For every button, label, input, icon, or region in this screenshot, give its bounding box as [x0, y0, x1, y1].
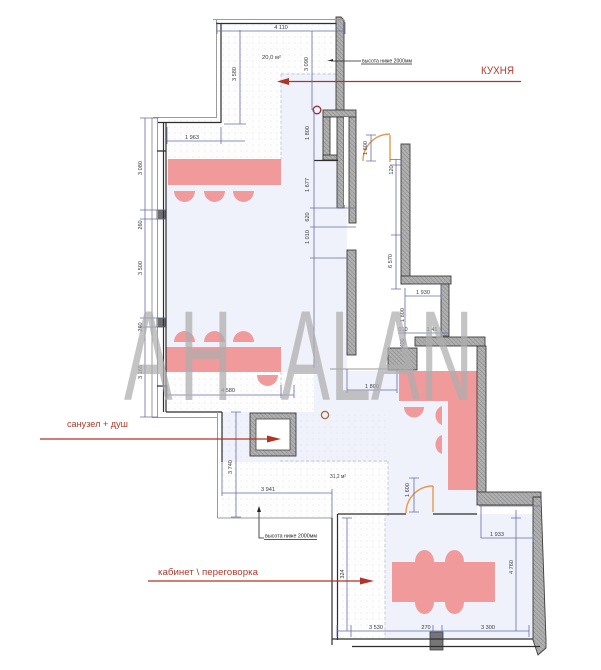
svg-text:1 677: 1 677 [305, 178, 311, 192]
svg-text:ALAN: ALAN [281, 285, 473, 428]
svg-text:270: 270 [421, 625, 430, 631]
svg-text:4 110: 4 110 [274, 25, 288, 31]
svg-text:324: 324 [340, 569, 346, 578]
svg-text:3 090: 3 090 [304, 57, 310, 71]
svg-text:1 933: 1 933 [490, 532, 504, 538]
svg-text:3 580: 3 580 [232, 67, 238, 81]
svg-text:3 941: 3 941 [261, 487, 275, 493]
svg-text:3 300: 3 300 [481, 625, 495, 631]
svg-text:1 963: 1 963 [185, 135, 199, 141]
svg-text:1 800: 1 800 [305, 126, 311, 140]
svg-text:260: 260 [138, 220, 144, 229]
svg-text:1 010: 1 010 [305, 230, 311, 244]
svg-text:КУХНЯ: КУХНЯ [481, 65, 514, 77]
svg-text:кабинет \ переговорка: кабинет \ переговорка [158, 567, 259, 578]
svg-text:4 760: 4 760 [509, 560, 515, 574]
svg-text:высота ниже 2000мм: высота ниже 2000мм [362, 59, 412, 65]
svg-text:20,0 м²: 20,0 м² [262, 55, 281, 61]
svg-text:6 570: 6 570 [388, 254, 394, 268]
svg-text:3 530: 3 530 [369, 625, 383, 631]
svg-text:1 600: 1 600 [405, 483, 411, 497]
svg-text:3 740: 3 740 [228, 460, 234, 474]
svg-text:3 500: 3 500 [138, 261, 144, 275]
svg-text:120: 120 [389, 165, 395, 174]
svg-text:620: 620 [305, 212, 311, 221]
svg-text:санузел + душ: санузел + душ [67, 419, 128, 430]
svg-text:31,2 м²: 31,2 м² [330, 474, 346, 480]
svg-text:высота ниже 2000мм: высота ниже 2000мм [265, 534, 317, 540]
svg-text:1 600: 1 600 [363, 141, 369, 155]
svg-text:3 080: 3 080 [138, 161, 144, 175]
svg-text:АН: АН [124, 286, 239, 429]
